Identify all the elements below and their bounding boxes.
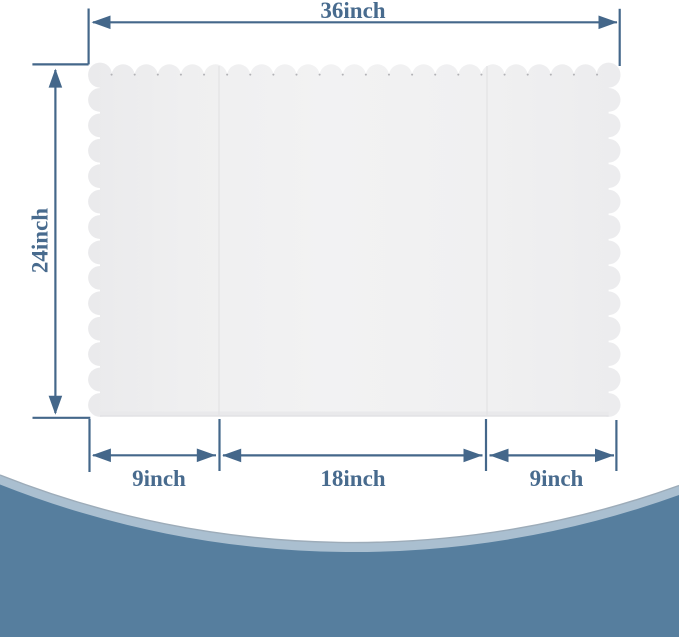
svg-text:36inch: 36inch [320,0,385,23]
svg-text:24inch: 24inch [28,208,53,273]
svg-text:9inch: 9inch [132,466,186,491]
svg-text:9inch: 9inch [530,466,584,491]
svg-text:18inch: 18inch [320,466,385,491]
